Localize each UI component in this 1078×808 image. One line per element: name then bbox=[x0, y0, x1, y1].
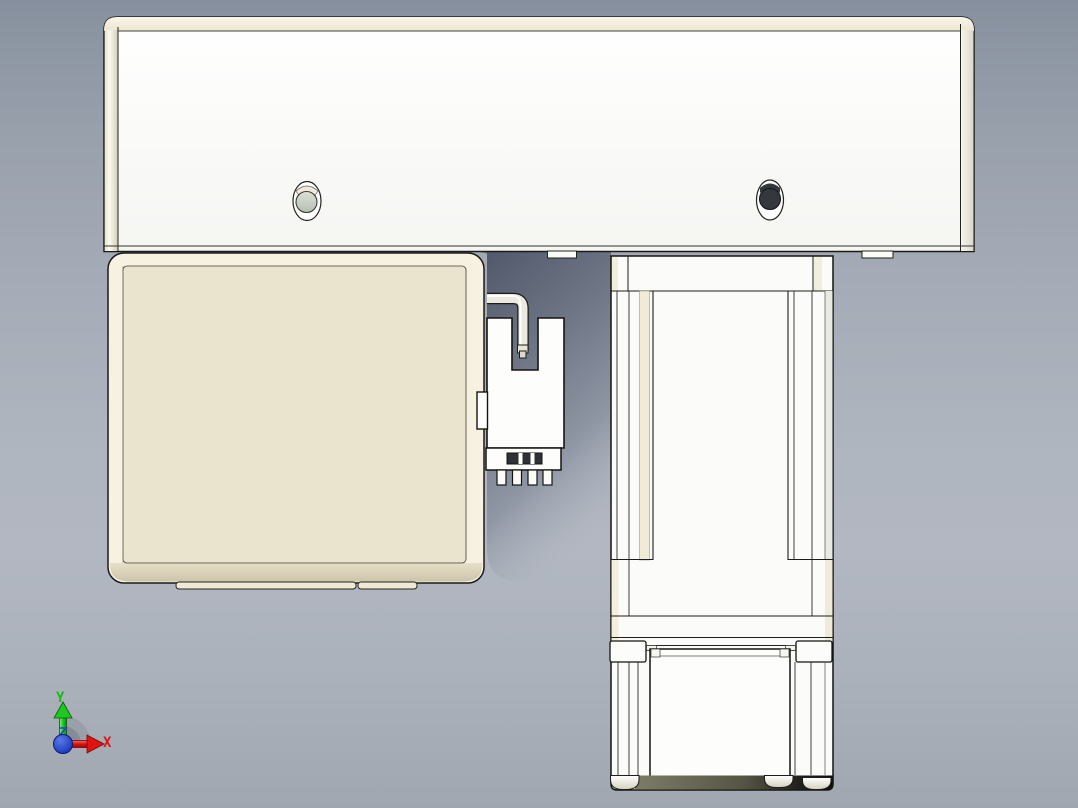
rail-right-shade bbox=[825, 291, 833, 560]
rail-stripe-cream-mid-right bbox=[825, 560, 833, 645]
rail-top-band-cream-right bbox=[814, 257, 822, 291]
rail-stripe-cream-mid-left bbox=[612, 560, 619, 645]
connector-pin-4 bbox=[543, 470, 552, 485]
cad-viewport[interactable]: X Y bbox=[0, 0, 1078, 808]
cad-scene: X Y bbox=[0, 0, 1078, 808]
motor-box[interactable] bbox=[108, 253, 484, 589]
motor-box-bottom-band bbox=[110, 563, 482, 582]
connector-pin-3 bbox=[528, 470, 537, 485]
orientation-triad[interactable]: X Y bbox=[54, 690, 113, 754]
connector-slot-divider-1 bbox=[519, 453, 523, 464]
plate-tab-left bbox=[548, 251, 577, 258]
plate-hole-right[interactable] bbox=[757, 180, 784, 220]
rail-lug-left bbox=[610, 641, 646, 662]
motor-box-face bbox=[123, 266, 466, 563]
plate-hole-left[interactable] bbox=[293, 182, 321, 221]
rail-top-band-cream-left bbox=[612, 257, 618, 291]
slider-notch-right bbox=[780, 649, 789, 657]
top-plate-left-edge bbox=[105, 30, 118, 251]
sensor-pin-tip-end bbox=[520, 351, 527, 358]
top-plate[interactable] bbox=[104, 17, 974, 258]
plate-tab-right bbox=[862, 251, 893, 258]
hole-left-bore bbox=[296, 192, 317, 213]
connector-side-tab bbox=[477, 392, 488, 429]
top-plate-top-band bbox=[104, 17, 974, 31]
motor-box-foot-left bbox=[176, 582, 356, 589]
slider-panel[interactable] bbox=[650, 649, 790, 777]
rail-lug-right bbox=[796, 641, 832, 662]
triad-origin-ball[interactable] bbox=[54, 735, 73, 754]
connector-slot-divider-2 bbox=[531, 453, 535, 464]
y-axis-label: Y bbox=[56, 690, 65, 706]
x-axis-arrowhead bbox=[87, 735, 104, 753]
rail-foot-mid bbox=[765, 776, 794, 788]
connector-pin-2 bbox=[513, 470, 522, 485]
top-plate-right-edge bbox=[961, 30, 974, 251]
rail-foot-right bbox=[803, 778, 832, 790]
connector-pin-1 bbox=[497, 470, 506, 485]
connector-slot bbox=[507, 453, 542, 464]
linear-rail[interactable] bbox=[610, 256, 833, 790]
rail-foot-left bbox=[611, 776, 640, 790]
top-plate-body[interactable] bbox=[104, 17, 974, 252]
slider-notch-left bbox=[651, 649, 660, 657]
x-axis-label: X bbox=[103, 735, 112, 751]
hole-right-bore bbox=[760, 189, 781, 210]
motor-box-foot-right bbox=[358, 582, 417, 589]
rail-stripe-cream-upper-left bbox=[640, 291, 650, 560]
